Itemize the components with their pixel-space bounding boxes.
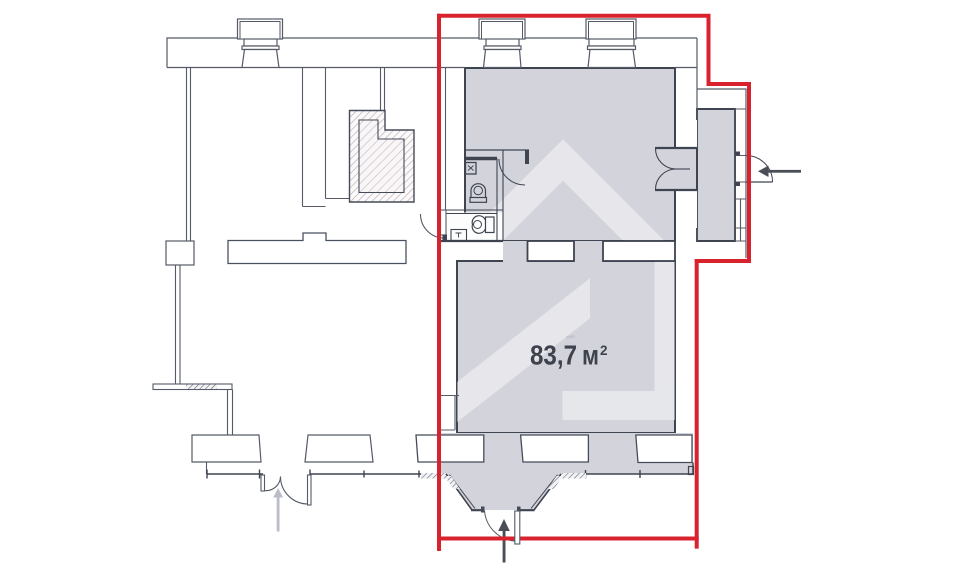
svg-text:83,7: 83,7 — [530, 340, 577, 371]
svg-text:2: 2 — [600, 343, 608, 358]
svg-text:м: м — [582, 340, 599, 371]
